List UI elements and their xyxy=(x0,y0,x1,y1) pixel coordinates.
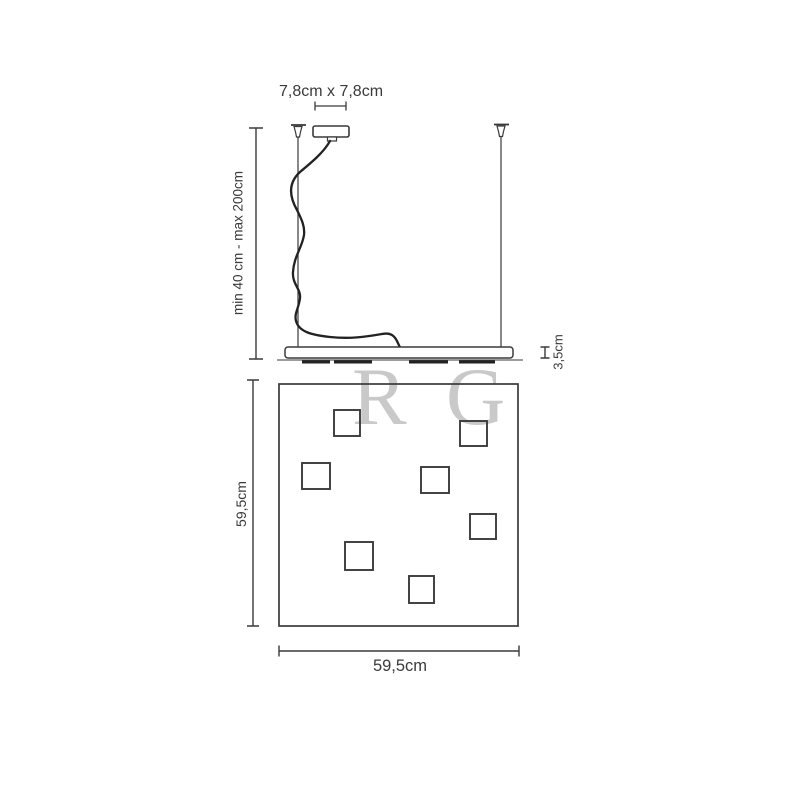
suspension-dimension-line xyxy=(249,128,263,359)
panel-thickness-label: 3,5cm xyxy=(551,334,566,369)
led-square-3 xyxy=(302,463,330,489)
dim-panel-depth: 59,5cm xyxy=(233,380,259,626)
canopy-cord-connector xyxy=(328,137,337,141)
led-square-4 xyxy=(421,467,449,493)
led-square-7 xyxy=(409,576,434,603)
dim-suspension-height: min 40 cm - max 200cm xyxy=(231,128,264,359)
right-suspension xyxy=(494,125,509,348)
dim-panel-thickness: 3,5cm xyxy=(541,334,566,369)
side-view: 7,8cm x 7,8cm xyxy=(231,83,566,370)
canopy-dimension-bracket xyxy=(315,102,346,111)
led-square-6 xyxy=(345,542,373,570)
panel-depth-label: 59,5cm xyxy=(233,481,249,527)
left-cable-gripper xyxy=(294,127,302,138)
dim-canopy-width: 7,8cm x 7,8cm xyxy=(279,83,383,111)
right-cable-gripper xyxy=(497,126,505,137)
power-cord xyxy=(291,141,400,348)
panel-side-body xyxy=(285,347,513,358)
dim-panel-width: 59,5cm xyxy=(279,646,519,676)
led-square-5 xyxy=(470,514,496,539)
canopy-size-label: 7,8cm x 7,8cm xyxy=(279,83,383,100)
suspension-range-label: min 40 cm - max 200cm xyxy=(231,171,246,315)
diagram-page: R G 7,8cm x 7,8cm xyxy=(0,0,800,800)
lamp-panel-side xyxy=(277,347,523,362)
panel-width-label: 59,5cm xyxy=(373,657,427,675)
watermark-letter-g: G xyxy=(446,351,505,442)
canopy-body xyxy=(313,126,349,137)
dimension-diagram: R G 7,8cm x 7,8cm xyxy=(0,0,800,800)
width-dimension-line xyxy=(279,646,519,657)
thickness-dimension-line xyxy=(541,347,550,358)
ceiling-canopy xyxy=(313,126,349,141)
